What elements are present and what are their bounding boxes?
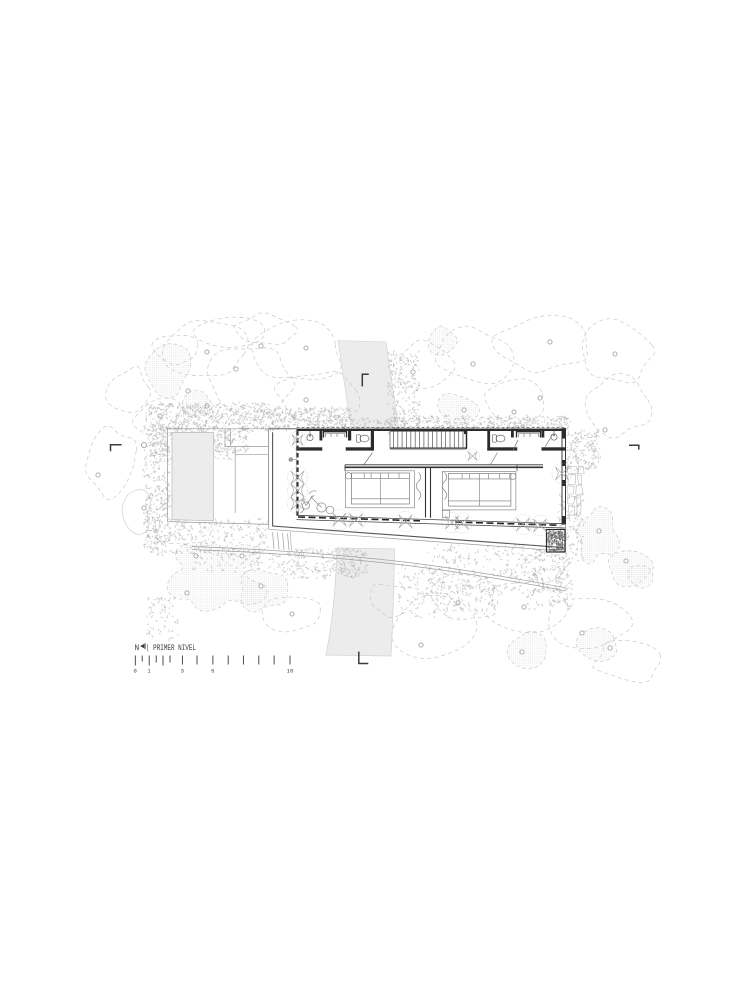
svg-text:5: 5 <box>211 668 214 675</box>
svg-text:3: 3 <box>181 668 184 675</box>
svg-text:10: 10 <box>287 668 294 675</box>
svg-text:0: 0 <box>134 668 137 675</box>
svg-text:N: N <box>135 645 140 653</box>
svg-text:| PRIMER NIVEL: | PRIMER NIVEL <box>146 645 196 653</box>
